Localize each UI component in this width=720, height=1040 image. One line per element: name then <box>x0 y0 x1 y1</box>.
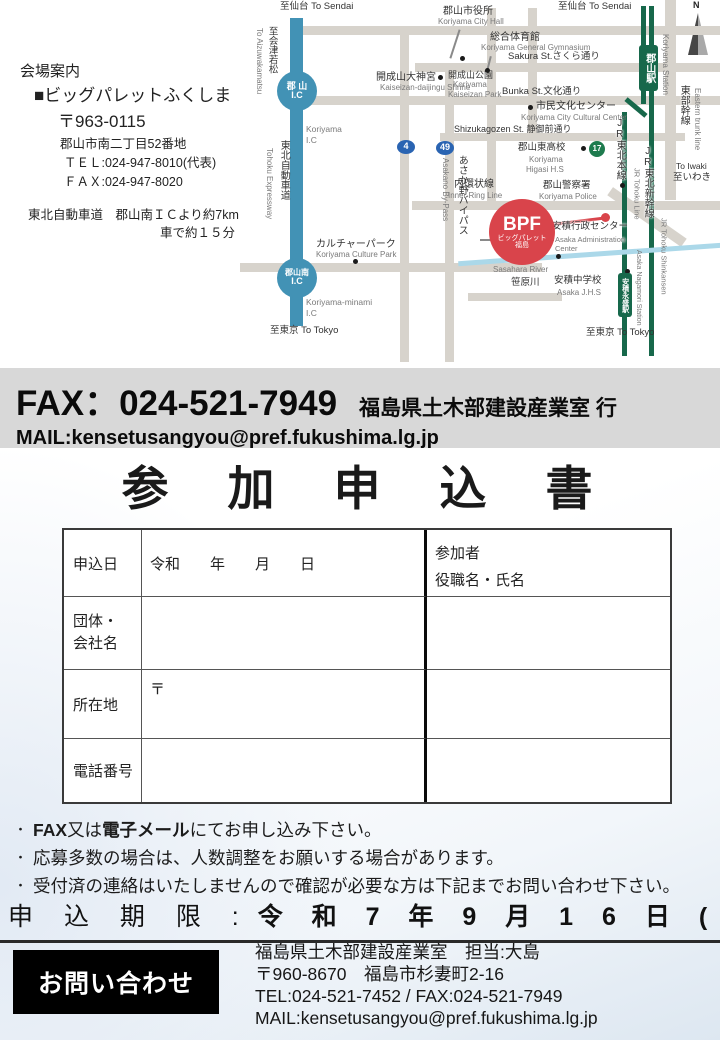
organization-label-line1: 団体・ <box>73 611 118 634</box>
bullet-icon: ・ <box>14 850 27 865</box>
organization-label-line2: 会社名 <box>73 633 118 656</box>
map-label: To Aizuwakamatsu <box>254 28 263 94</box>
note-text: 受付済の連絡はいたしませんので確認が必要な方は下記までお問い合わせ下さい。 <box>33 876 680 896</box>
map-label: Koriyama <box>306 125 342 135</box>
venue-address: 郡山市南二丁目52番地 <box>60 136 250 153</box>
map-label: 至東京 To Tokyo <box>270 326 338 337</box>
contact-box-label: お問い合わせ <box>38 964 194 1000</box>
address-label: 所在地 <box>64 670 142 739</box>
map-label: Koriyama City Hall <box>438 18 504 27</box>
contact-info: 福島県土木部建設産業室 担当:大島 〒960-8670 福島市杉妻町2-16 T… <box>255 941 598 1029</box>
bullet-icon: ・ <box>14 822 27 837</box>
apply-date-label: 申込日 <box>64 530 142 597</box>
map-label: Asakano By-Pass <box>440 158 449 221</box>
map-label: 至東京 To Tokyo <box>586 328 654 339</box>
map-label: Shizukagozen St. 静御前通り <box>454 124 572 134</box>
venue-fax: ＦＡＸ:024-947-8020 <box>64 174 250 191</box>
note-item: ・受付済の連絡はいたしませんので確認が必要な方は下記までお問い合わせ下さい。 <box>14 872 714 900</box>
map-label: 笹原川 <box>511 278 540 289</box>
note-text: 又は <box>67 820 102 840</box>
map-label: Koriyama <box>529 156 563 165</box>
map-poi-dot <box>581 146 586 151</box>
apply-date-field[interactable]: 令和 年 月 日 <box>142 530 427 597</box>
map-label: Koriyama City Cultural Center <box>521 114 627 123</box>
map-label: 至仙台 To Sendai <box>280 2 353 13</box>
route17-shield: 17 <box>589 141 605 157</box>
form-title: 参 加 申 込 書 <box>0 450 720 519</box>
compass-north-label: N <box>693 0 700 10</box>
map-label: Koriyama Station <box>660 34 669 95</box>
address-field[interactable]: 〒 <box>142 670 427 739</box>
participants-field-1[interactable] <box>427 597 670 670</box>
map-poi-dot <box>460 56 465 61</box>
access-map: N 至仙台 To Sendai至仙台 To Sendai至会津若松To Aizu… <box>240 0 720 362</box>
fax-recipient: 福島県土木部建設産業室 行 <box>359 392 617 422</box>
map-label: 内環状線 <box>454 179 494 190</box>
map-label: Sasahara River <box>493 266 548 275</box>
map-label: Tohoku Expressway <box>264 148 273 219</box>
route49-shield: 49 <box>436 141 454 155</box>
map-label: Asaka J.H.S <box>557 289 601 298</box>
map-label: 至会津若松 <box>266 26 277 74</box>
koriyama-ic-badge: 郡 山I.C <box>277 71 317 111</box>
map-label: カルチャーパーク <box>316 239 396 250</box>
map-label: Koriyama Police <box>539 193 597 202</box>
route49-shield-label: 49 <box>440 143 450 152</box>
organization-label: 団体・ 会社名 <box>64 597 142 670</box>
map-label: JR Tohoku Line <box>632 168 640 220</box>
map-label: Bunka St.文化通り <box>502 87 581 98</box>
note-text: にてお申し込み下さい。 <box>190 820 382 840</box>
koriyama-ic-badge-label: I.C <box>291 91 303 100</box>
bpf-badge: BPFビッグパレット福島 <box>489 199 555 265</box>
map-label: 郡山警察署 <box>543 181 591 192</box>
map-label: 市民文化センター <box>536 101 616 112</box>
venue-heading: 会場案内 <box>20 62 250 82</box>
map-label: 郡山東高校 <box>518 143 566 154</box>
bpf-badge-label: 福島 <box>515 242 529 249</box>
map-label: 安積行政センター <box>552 222 628 233</box>
map-label: 郡山市役所 <box>443 6 493 17</box>
participants-field-2[interactable] <box>427 670 670 739</box>
organization-field[interactable] <box>142 597 427 670</box>
map-label: Koriyama <box>453 81 487 90</box>
map-label: JR東北本線 <box>614 118 625 180</box>
map-poi-dot <box>438 75 443 80</box>
map-label: I.C <box>306 309 317 319</box>
participants-field-3[interactable] <box>427 739 670 802</box>
note-text: 応募多数の場合は、人数調整をお願いする場合があります。 <box>33 848 504 868</box>
note-item: ・FAX又は電子メールにてお申し込み下さい。 <box>14 816 714 844</box>
bpf-badge-label: BPF <box>503 215 541 235</box>
participants-header: 参加者 役職名・氏名 <box>427 530 670 597</box>
phone-label: 電話番号 <box>64 739 142 802</box>
map-poi-dot <box>620 183 625 188</box>
contact-box: お問い合わせ <box>13 950 219 1014</box>
phone-field[interactable] <box>142 739 427 802</box>
bpf-badge-label: ビッグパレット <box>498 235 547 242</box>
deadline-label: 申 込 期 限 : <box>8 903 251 931</box>
koriyama-minami-ic-badge: 郡山南I.C <box>277 258 317 298</box>
koriyama-station-badge: 郡山駅 <box>639 45 658 91</box>
asaka-nagamori-station-badge: 安積永盛駅 <box>618 273 632 317</box>
note-item: ・応募多数の場合は、人数調整をお願いする場合があります。 <box>14 844 714 872</box>
mail-address: MAIL:kensetusangyou@pref.fukushima.lg.jp <box>16 427 720 450</box>
map-label: Inner Ring Line <box>448 192 502 201</box>
map-label: 至いわき <box>673 173 711 184</box>
note-text: FAX <box>33 820 67 840</box>
map-label: To Iwaki <box>676 162 707 172</box>
map-label: Kaiseizan Park <box>448 91 501 100</box>
map-label: Sakura St.さくら通り <box>508 52 600 63</box>
map-label: Eastern trunk line <box>692 88 701 150</box>
venue-postal-code: 〒963-0115 <box>58 111 250 134</box>
application-form-table: 申込日 令和 年 月 日 参加者 役職名・氏名 団体・ 会社名 所在地 〒 電話… <box>62 528 672 804</box>
notes-list: ・FAX又は電子メールにてお申し込み下さい。・応募多数の場合は、人数調整をお願い… <box>14 816 714 900</box>
participants-line2: 役職名・氏名 <box>435 567 525 594</box>
participants-line1: 参加者 <box>435 540 480 567</box>
map-poi-dot <box>353 259 358 264</box>
deadline-row: 申 込 期 限 : 令 和 7 年 9 月 1 6 日 ( 火 ) <box>0 897 720 943</box>
map-poi-dot <box>528 105 533 110</box>
contact-department: 福島県土木部建設産業室 担当:大島 <box>255 941 598 963</box>
map-poi-dot <box>556 254 561 259</box>
map-label: 総合体育館 <box>490 32 540 43</box>
map-poi-dot <box>601 213 610 222</box>
map-label: Center <box>555 245 578 253</box>
map-label: JR Tohoku Shinkansen <box>659 218 667 295</box>
map-label: 東部幹線 <box>678 85 689 125</box>
venue-info: 会場案内 ■ビッグパレットふくしま 〒963-0115 郡山市南二丁目52番地 … <box>20 62 250 242</box>
venue-access-note: 東北自動車道 郡山南ＩＣより約7km <box>28 207 250 224</box>
contact-mail: MAIL:kensetusangyou@pref.fukushima.lg.jp <box>255 1007 598 1029</box>
map-label: Higasi H.S <box>526 166 564 175</box>
map-label: 東北自動車道 <box>278 140 289 200</box>
route17-shield-label: 17 <box>593 145 602 153</box>
map-label: Koriyama-minami <box>306 298 372 308</box>
contact-address: 〒960-8670 福島市杉妻町2-16 <box>255 963 598 985</box>
map-label: 開成山大神宮 <box>376 72 436 83</box>
road-eastern-trunk <box>665 0 676 200</box>
contact-tel-fax: TEL:024-521-7452 / FAX:024-521-7949 <box>255 985 598 1007</box>
venue-access-time: 車で約１５分 <box>160 225 250 242</box>
koriyama-minami-ic-badge-label: I.C <box>291 277 303 286</box>
map-label: JR東北新幹線 <box>642 146 653 218</box>
fax-band: FAX：024-521-7949 福島県土木部建設産業室 行 MAIL:kens… <box>0 368 720 448</box>
road-south-spur <box>468 293 562 301</box>
map-label: 安積中学校 <box>554 276 602 287</box>
map-label: I.C <box>306 136 317 146</box>
venue-name: ■ビッグパレットふくしま <box>34 85 250 108</box>
koriyama-station-badge-label: 郡山駅 <box>643 53 654 83</box>
asaka-nagamori-station-badge-label: 安積永盛駅 <box>621 278 628 313</box>
route4-shield-label: 4 <box>403 142 408 151</box>
flyer-page: 会場案内 ■ビッグパレットふくしま 〒963-0115 郡山市南二丁目52番地 … <box>0 0 720 1040</box>
bullet-icon: ・ <box>14 878 27 893</box>
fax-number: FAX：024-521-7949 <box>16 375 337 426</box>
map-label: 至仙台 To Sendai <box>558 2 631 13</box>
venue-tel: ＴＥＬ:024-947-8010(代表) <box>64 155 250 172</box>
note-text: 電子メール <box>102 820 190 840</box>
map-poi-dot <box>485 68 490 73</box>
route4-shield: 4 <box>397 140 415 154</box>
map-label: Asaka Nagamori Station <box>634 250 642 325</box>
deadline-value: 令 和 7 年 9 月 1 6 日 ( 火 ) <box>258 903 720 931</box>
